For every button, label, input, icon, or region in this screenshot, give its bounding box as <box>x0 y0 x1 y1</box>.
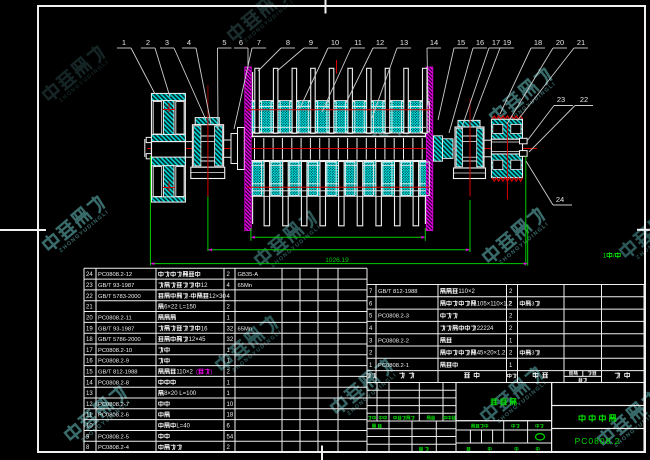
svg-text:PC0808.2-2: PC0808.2-2 <box>378 338 409 344</box>
svg-text:9: 9 <box>309 38 313 47</box>
svg-text:3: 3 <box>369 338 373 344</box>
svg-text:105×110×1.2: 105×110×1.2 <box>477 301 513 307</box>
svg-text:3: 3 <box>165 38 169 47</box>
svg-text:16: 16 <box>201 326 208 332</box>
svg-text:65Mn: 65Mn <box>238 283 253 289</box>
svg-text:PC0808.2-9: PC0808.2-9 <box>98 359 129 365</box>
svg-text:): ) <box>210 369 212 375</box>
svg-text:10: 10 <box>227 402 234 408</box>
svg-text:12: 12 <box>86 402 93 408</box>
svg-text:20: 20 <box>86 315 93 321</box>
svg-text:1: 1 <box>509 363 513 369</box>
svg-text:6: 6 <box>227 424 231 430</box>
svg-text:GB/T 93-1987: GB/T 93-1987 <box>98 326 134 332</box>
svg-text:GB/T 812-1988: GB/T 812-1988 <box>378 289 418 295</box>
svg-text:GB/T 812-1988: GB/T 812-1988 <box>98 369 138 375</box>
svg-text:L=40: L=40 <box>176 424 190 430</box>
svg-text:16: 16 <box>476 38 484 47</box>
svg-text:PC0808.2-10: PC0808.2-10 <box>98 348 132 354</box>
svg-text:PC0808.2: PC0808.2 <box>575 436 621 446</box>
svg-text:54: 54 <box>227 434 234 440</box>
svg-text:2: 2 <box>227 272 231 278</box>
svg-text:2: 2 <box>509 301 513 307</box>
svg-text:2: 2 <box>227 445 231 451</box>
svg-text:PC0808.2-12: PC0808.2-12 <box>98 272 132 278</box>
svg-text:2: 2 <box>227 305 231 311</box>
svg-text:PC0808.2-4: PC0808.2-4 <box>98 445 130 451</box>
svg-text:19: 19 <box>86 326 93 332</box>
svg-text:2: 2 <box>509 326 513 332</box>
svg-text:2: 2 <box>509 351 513 357</box>
svg-text:/: / <box>613 253 615 260</box>
svg-text:24: 24 <box>86 272 93 278</box>
svg-text:11: 11 <box>86 413 93 419</box>
svg-text:10: 10 <box>86 424 93 430</box>
svg-text:23: 23 <box>557 95 565 104</box>
svg-text:15: 15 <box>457 38 465 47</box>
svg-text:2: 2 <box>509 314 513 320</box>
svg-text:24: 24 <box>556 195 564 204</box>
svg-text:1: 1 <box>227 391 231 397</box>
svg-text:22: 22 <box>580 95 588 104</box>
svg-text:3: 3 <box>531 351 534 357</box>
svg-text:GB/T 5786-2000: GB/T 5786-2000 <box>98 337 141 343</box>
svg-text:110×2: 110×2 <box>458 289 475 295</box>
svg-text:21: 21 <box>86 305 93 311</box>
svg-text:14: 14 <box>430 38 438 47</box>
svg-text:10: 10 <box>331 38 339 47</box>
svg-text:7: 7 <box>257 38 261 47</box>
svg-text:22: 22 <box>86 294 93 300</box>
svg-text:23: 23 <box>86 283 93 289</box>
svg-text:32: 32 <box>227 337 234 343</box>
svg-text:7: 7 <box>369 289 373 295</box>
svg-text:6: 6 <box>239 38 243 47</box>
svg-text:PC0808.2-3: PC0808.2-3 <box>378 314 409 320</box>
svg-text:GB/T 5783-2000: GB/T 5783-2000 <box>98 294 141 300</box>
svg-text:12: 12 <box>376 38 384 47</box>
svg-text:18: 18 <box>227 413 234 419</box>
svg-text:65Mn: 65Mn <box>238 326 253 332</box>
svg-text:110×2: 110×2 <box>176 369 193 375</box>
svg-text:12×30: 12×30 <box>209 294 227 300</box>
svg-text:5: 5 <box>222 38 226 47</box>
svg-text:13: 13 <box>400 38 408 47</box>
svg-text:GB/T 93-1987: GB/T 93-1987 <box>98 283 134 289</box>
svg-text:17: 17 <box>492 38 500 47</box>
svg-text:2: 2 <box>369 351 373 357</box>
svg-text:14: 14 <box>86 380 93 386</box>
svg-text:8: 8 <box>86 445 90 451</box>
svg-text:GB35-A: GB35-A <box>238 272 259 278</box>
svg-text:12: 12 <box>201 283 208 289</box>
svg-text:22224: 22224 <box>477 326 494 332</box>
svg-text:12×45: 12×45 <box>189 337 207 343</box>
svg-text:8×20 L=100: 8×20 L=100 <box>164 391 197 397</box>
svg-text:1: 1 <box>227 315 231 321</box>
svg-text:11: 11 <box>354 38 362 47</box>
svg-text:4: 4 <box>369 326 373 332</box>
svg-text:1: 1 <box>369 363 373 369</box>
svg-text:PC0808.2-11: PC0808.2-11 <box>98 315 132 321</box>
svg-text:20: 20 <box>556 38 564 47</box>
svg-text:2: 2 <box>509 289 513 295</box>
svg-text:PC0808.2-1: PC0808.2-1 <box>378 363 409 369</box>
svg-text:4: 4 <box>187 38 191 47</box>
svg-text:45×20×1.2: 45×20×1.2 <box>477 351 506 357</box>
svg-text:1: 1 <box>227 380 231 386</box>
svg-text:16: 16 <box>86 359 93 365</box>
svg-text:17: 17 <box>86 348 93 354</box>
svg-text:18: 18 <box>534 38 542 47</box>
svg-text:(: ( <box>196 369 198 375</box>
svg-text:19: 19 <box>503 38 511 47</box>
svg-text:6: 6 <box>369 301 373 307</box>
svg-text:1: 1 <box>509 338 513 344</box>
svg-text:2: 2 <box>146 38 150 47</box>
svg-text:1026.19: 1026.19 <box>325 257 349 264</box>
svg-text:2: 2 <box>227 369 231 375</box>
svg-text:6×22 L=150: 6×22 L=150 <box>164 305 197 311</box>
svg-text:PC0808.2-7: PC0808.2-7 <box>98 402 129 408</box>
svg-text:PC0808.2-6: PC0808.2-6 <box>98 413 129 419</box>
svg-text:3: 3 <box>531 301 534 307</box>
svg-text:1: 1 <box>603 253 607 260</box>
svg-text:15: 15 <box>86 369 93 375</box>
svg-text:32: 32 <box>227 326 234 332</box>
svg-text:5: 5 <box>369 314 373 320</box>
svg-text:8: 8 <box>286 38 290 47</box>
svg-text:PC0808.2-8: PC0808.2-8 <box>98 380 129 386</box>
svg-text:4: 4 <box>227 294 231 300</box>
svg-text:18: 18 <box>86 337 93 343</box>
svg-text:PC0808.2-5: PC0808.2-5 <box>98 434 129 440</box>
svg-text:-: - <box>189 294 191 300</box>
svg-text:21: 21 <box>577 38 585 47</box>
svg-text:1: 1 <box>122 38 126 47</box>
svg-text:13: 13 <box>86 391 93 397</box>
svg-text:4: 4 <box>227 283 231 289</box>
